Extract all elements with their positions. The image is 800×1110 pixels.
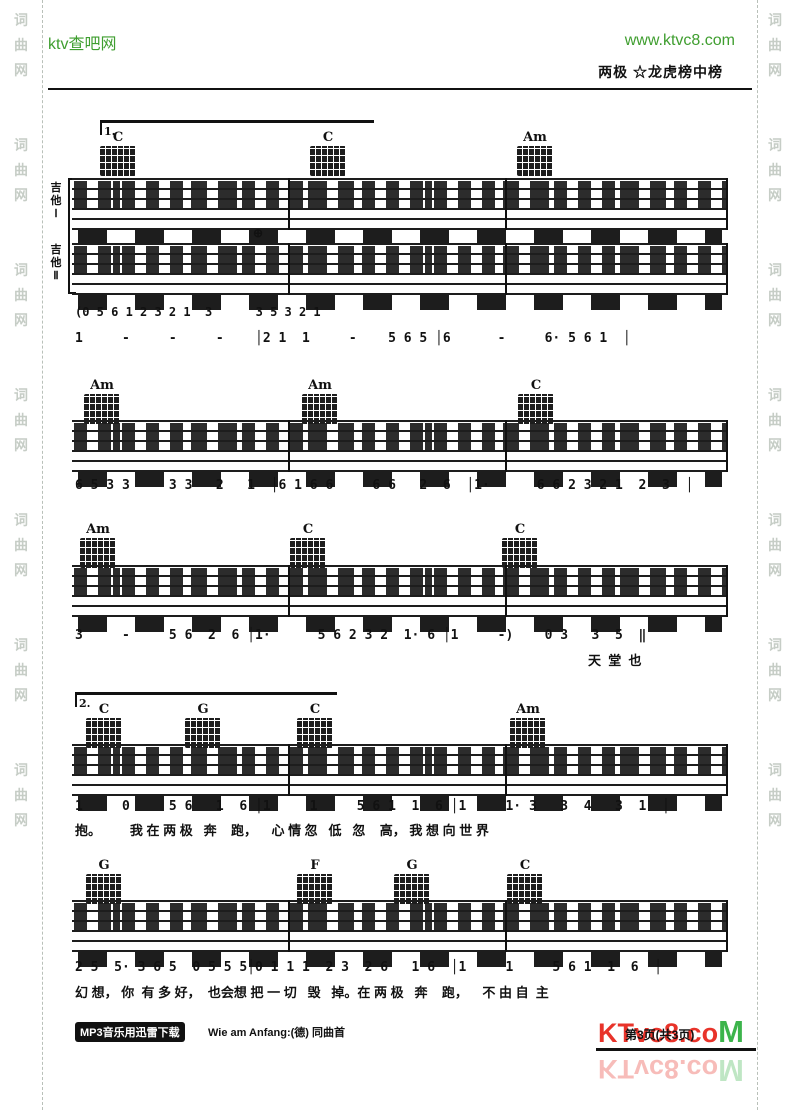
chord-name: C — [306, 130, 350, 145]
barline — [505, 565, 507, 617]
ktvc8-logo-reflection: KTvc8.coM — [598, 1052, 753, 1088]
chord-name: G — [181, 702, 225, 717]
melody-line-4: 1 0 5 6 1 6 │1 1 5 6 1 1 6 │1 1· 3 3 4 3… — [75, 799, 760, 814]
tab-staff — [72, 420, 728, 472]
tab-notes — [74, 181, 726, 208]
page-info: 第3页(共3页) — [625, 1026, 694, 1043]
lyrics-line: 抱。 我 在 两 极 奔 跑， 心 情 忽 低 忽 高， 我 想 向 世 界 — [75, 820, 760, 839]
site-url-link[interactable]: www.ktvc8.com — [625, 32, 735, 50]
chord-name: C — [498, 522, 542, 537]
chord-am: Am — [513, 130, 557, 176]
chord-diagram — [502, 538, 538, 568]
left-dashed-border — [42, 0, 43, 1110]
lyrics-line: 幻 想， 你 有 多 好， 也会想 把 一 切 毁 掉。在 两 极 奔 跑， 不… — [75, 982, 760, 1001]
tab-staff — [72, 565, 728, 617]
chord-c: C — [96, 130, 140, 176]
barline — [505, 243, 507, 295]
tab-notes — [74, 246, 726, 273]
logo-underline — [596, 1048, 756, 1051]
chord-diagram — [310, 146, 346, 176]
chord-am: Am — [506, 702, 550, 748]
mp3-download-tag[interactable]: MP3音乐用迅雷下载 — [75, 1022, 185, 1042]
header-divider — [48, 88, 752, 90]
barline — [288, 243, 290, 295]
chord-name: C — [96, 130, 140, 145]
site-name-link[interactable]: ktv查吧网 — [48, 30, 116, 54]
chord-c: C — [503, 858, 547, 904]
logo-text-dotco: .co — [679, 1054, 718, 1084]
lyrics-line: 天 堂 也 — [588, 650, 760, 669]
tab-staff — [72, 744, 728, 796]
performance-note: Wie am Anfang:(德) 同曲首 — [208, 1024, 345, 1040]
chord-name: C — [514, 378, 558, 393]
barline — [505, 744, 507, 796]
chord-name: Am — [76, 522, 120, 537]
tab-notes — [74, 747, 726, 774]
barline — [726, 178, 728, 230]
song-title: 两极 ☆龙虎榜中榜 — [598, 62, 723, 82]
barline — [726, 744, 728, 796]
barline — [288, 178, 290, 230]
tab-notes — [74, 568, 726, 595]
right-watermark-text: 词 曲 网 词 曲 网 词 曲 网 词 曲 网 词 曲 网 词 曲 网 词 曲 … — [768, 8, 782, 833]
chord-name: Am — [506, 702, 550, 717]
tab-staff — [72, 900, 728, 952]
sheet-music-page: 词 曲 网 词 曲 网 词 曲 网 词 曲 网 词 曲 网 词 曲 网 词 曲 … — [0, 0, 800, 1110]
right-dashed-border — [757, 0, 758, 1110]
barline — [726, 420, 728, 472]
tab-notes — [74, 423, 726, 450]
chord-name: C — [286, 522, 330, 537]
chord-name: C — [503, 858, 547, 873]
chord-c: C — [306, 130, 350, 176]
barline — [726, 565, 728, 617]
chord-g: G — [82, 858, 126, 904]
chord-f: F — [293, 858, 337, 904]
chord-name: C — [82, 702, 126, 717]
chord-c: C — [82, 702, 126, 748]
chord-am: Am — [298, 378, 342, 424]
chord-c: C — [286, 522, 330, 568]
chord-am: Am — [76, 522, 120, 568]
chord-name: G — [82, 858, 126, 873]
chord-name: Am — [80, 378, 124, 393]
chord-diagram — [290, 538, 326, 568]
chord-diagram — [80, 538, 116, 568]
jianpu-intro-line: (0 5 6 1 2 3 2 1 3 3 5 3 2 1 — [75, 305, 760, 319]
barline — [726, 900, 728, 952]
barline — [288, 565, 290, 617]
barline — [726, 243, 728, 295]
chord-name: Am — [298, 378, 342, 393]
chord-diagram — [517, 146, 553, 176]
chord-name: F — [293, 858, 337, 873]
barline — [505, 900, 507, 952]
barline — [288, 900, 290, 952]
chord-diagram — [100, 146, 136, 176]
logo-text-m: M — [718, 1014, 744, 1049]
melody-line-1: 1 - - - │2 1 1 - 5 6 5 │6 - 6· 5 6 1 │ — [75, 331, 760, 346]
melody-line-2: 6 5 3 3 3 3 2 1 │6 1 6 6 6 6 2 6 │1· 6 6… — [75, 478, 760, 493]
barline — [288, 744, 290, 796]
barline — [288, 420, 290, 472]
chord-c: C — [498, 522, 542, 568]
chord-c: C — [514, 378, 558, 424]
logo-text-ktvc8: KTvc8 — [598, 1054, 679, 1084]
chord-name: G — [390, 858, 434, 873]
melody-line-5: 2 5 5· 3 6 5 0 5 5 5│0 1 1 1 2 3 2 6 1 6… — [75, 960, 760, 975]
logo-text-m: M — [718, 1053, 744, 1088]
barline — [505, 420, 507, 472]
tab-notes — [74, 903, 726, 930]
barline — [505, 178, 507, 230]
guitar1-label: 吉 他 Ⅰ — [48, 182, 64, 221]
guitar2-label: 吉 他 Ⅱ — [48, 244, 64, 283]
chord-name: C — [293, 702, 337, 717]
tab-staff-guitar1 — [72, 178, 728, 230]
chord-name: Am — [513, 130, 557, 145]
chord-g: G — [390, 858, 434, 904]
melody-line-3: 3 - 5 6 2 6 │1· 5 6 2 3 2 1· 6 │1 -) 0 3… — [75, 628, 760, 643]
left-watermark-text: 词 曲 网 词 曲 网 词 曲 网 词 曲 网 词 曲 网 词 曲 网 词 曲 … — [14, 8, 28, 833]
chord-g: G — [181, 702, 225, 748]
tab-staff-guitar2 — [72, 243, 728, 295]
chord-c: C — [293, 702, 337, 748]
fingering-symbol: ⊕ — [253, 226, 263, 240]
chord-am: Am — [80, 378, 124, 424]
